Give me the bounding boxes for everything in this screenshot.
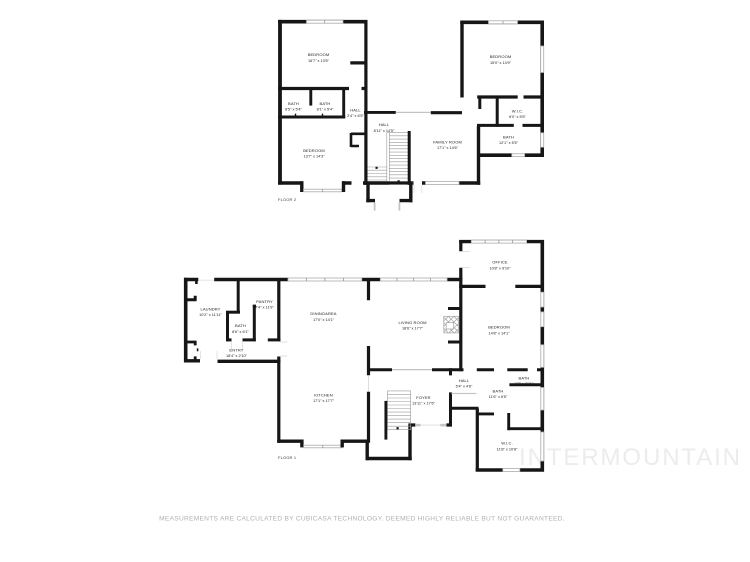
svg-text:BATH: BATH	[519, 376, 530, 381]
svg-text:MEASUREMENTS ARE CALCULATED BY: MEASUREMENTS ARE CALCULATED BY CUBICASA …	[159, 516, 565, 523]
svg-text:7'4" x 11'9": 7'4" x 11'9"	[255, 306, 274, 310]
svg-text:FLOOR 1: FLOOR 1	[278, 455, 296, 460]
svg-text:PANTRY: PANTRY	[256, 299, 273, 304]
svg-text:5'4" x 4'6": 5'4" x 4'6"	[456, 385, 473, 389]
svg-text:HALL: HALL	[459, 378, 470, 383]
svg-text:DININGAREA: DININGAREA	[310, 311, 336, 316]
svg-text:KITCHEN: KITCHEN	[314, 392, 332, 397]
svg-text:17'1" x 14'6": 17'1" x 14'6"	[437, 146, 459, 150]
svg-text:W.I.C.: W.I.C.	[501, 441, 513, 446]
svg-text:BATH: BATH	[235, 323, 246, 328]
svg-text:9'7" x 2'11": 9'7" x 2'11"	[515, 382, 534, 386]
svg-text:18'4" x 2'10": 18'4" x 2'10"	[226, 354, 248, 358]
svg-text:8'6" x 6'1": 8'6" x 6'1"	[232, 330, 249, 334]
svg-text:13'11" x 17'6": 13'11" x 17'6"	[412, 402, 436, 406]
svg-text:18'6" x 17'7": 18'6" x 17'7"	[402, 327, 424, 331]
svg-text:16'7" x 13'5": 16'7" x 13'5"	[308, 59, 330, 63]
svg-text:6'5" x 5'4": 6'5" x 5'4"	[285, 108, 302, 112]
svg-text:10'2" x 11'11": 10'2" x 11'11"	[199, 313, 222, 317]
svg-text:2'4" x 6'5": 2'4" x 6'5"	[347, 114, 364, 118]
svg-text:BEDROOM: BEDROOM	[303, 148, 325, 153]
svg-text:W.I.C.: W.I.C.	[512, 109, 524, 114]
svg-text:10'8" x 9'10": 10'8" x 9'10"	[489, 266, 511, 270]
svg-text:BATH: BATH	[288, 101, 299, 106]
svg-text:15'0" x 14'9": 15'0" x 14'9"	[490, 61, 512, 65]
svg-text:INTERMOUNTAIN: INTERMOUNTAIN	[519, 444, 742, 471]
svg-text:BATH: BATH	[493, 389, 504, 394]
svg-text:ENTRY: ENTRY	[229, 347, 243, 352]
svg-text:6'0" x 5'5": 6'0" x 5'5"	[509, 115, 526, 119]
svg-text:FAMILY ROOM: FAMILY ROOM	[433, 140, 462, 145]
svg-text:12'1" x 5'5": 12'1" x 5'5"	[499, 141, 519, 145]
svg-text:HALL: HALL	[350, 108, 361, 113]
svg-text:14'8" x 14'1": 14'8" x 14'1"	[488, 331, 510, 335]
svg-text:17'1" x 17'7": 17'1" x 17'7"	[313, 399, 335, 403]
svg-text:8'1" x 5'4": 8'1" x 5'4"	[317, 108, 334, 112]
svg-text:BEDROOM: BEDROOM	[488, 325, 510, 330]
svg-text:BEDROOM: BEDROOM	[308, 52, 330, 57]
svg-text:BATH: BATH	[320, 101, 331, 106]
svg-text:BATH: BATH	[503, 134, 514, 139]
svg-text:8'11" x 14'5": 8'11" x 14'5"	[374, 129, 395, 133]
svg-text:11'8" x 10'8": 11'8" x 10'8"	[497, 447, 518, 451]
svg-text:OFFICE: OFFICE	[492, 260, 508, 265]
svg-text:HALL: HALL	[379, 122, 390, 127]
svg-text:17'0" x 14'1": 17'0" x 14'1"	[313, 318, 335, 322]
svg-text:LIVING ROOM: LIVING ROOM	[398, 320, 427, 325]
svg-text:11'6" x 6'5": 11'6" x 6'5"	[489, 395, 508, 399]
svg-text:13'7" x 14'3": 13'7" x 14'3"	[303, 155, 325, 159]
svg-text:FOYER: FOYER	[416, 395, 430, 400]
svg-text:LAUNDRY: LAUNDRY	[201, 307, 221, 312]
svg-text:FLOOR 2: FLOOR 2	[278, 197, 296, 202]
svg-text:BEDROOM: BEDROOM	[490, 54, 512, 59]
